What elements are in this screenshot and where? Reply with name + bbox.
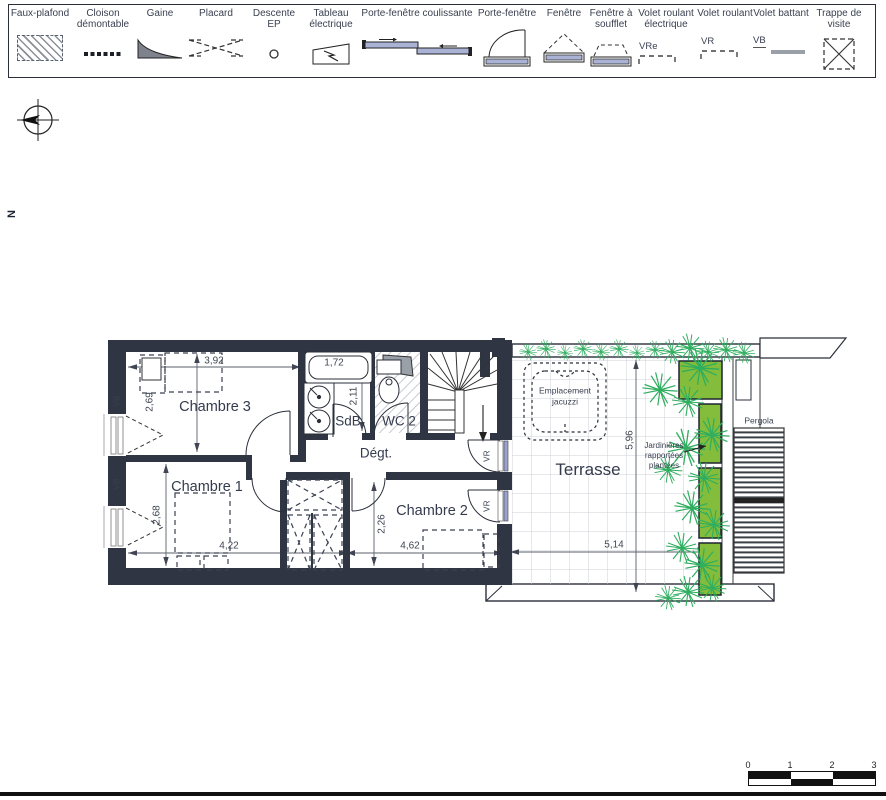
room-label-chambre2: Chambre 2 (396, 503, 468, 519)
room-label-wc2: WC 2 (382, 414, 416, 429)
scale-tick-0: 0 (745, 760, 750, 770)
gaine-plan (142, 358, 161, 380)
dim-ch1-width: 4,22 (219, 541, 238, 552)
dim-sdb-depth: 2,11 (349, 387, 360, 406)
double-sink (304, 383, 334, 434)
scale-tick-1: 1 (787, 760, 792, 770)
dim-bath: 1,72 (324, 358, 343, 369)
scale-tick-3: 3 (871, 760, 876, 770)
dim-terrasse-depth: 5,96 (625, 430, 636, 449)
room-label-terrasse: Terrasse (555, 460, 620, 480)
floor-plan-sheet: Faux-plafond Cloison démontable Gaine Pl… (0, 0, 886, 800)
room-label-chambre3: Chambre 3 (179, 399, 251, 415)
pergola (734, 428, 784, 573)
annotation-jardinieres: Jardinières rapportées plantées (636, 441, 692, 471)
scale-bar-segments (748, 771, 876, 786)
shutter-tag-vb-2: VB (113, 478, 122, 489)
floor-plan-drawing (0, 0, 886, 800)
room-label-sdb: SdB (335, 414, 361, 429)
room-label-chambre1: Chambre 1 (171, 479, 243, 495)
scale-bar: 0 1 2 3 (748, 760, 880, 788)
sheet-footer-rule (0, 792, 886, 796)
shutter-tag-vr-1: VR (483, 450, 492, 462)
dim-terrasse-width: 5,14 (604, 540, 623, 551)
terrace-slab-edge (486, 584, 774, 601)
annotation-jacuzzi: Emplacement jacuzzi (531, 385, 599, 406)
room-label-degagement: Dégt. (360, 446, 392, 461)
shutter-tag-vb-1: VB (113, 395, 122, 406)
dim-ch2-width: 4,62 (400, 541, 419, 552)
dim-ch2-depth: 2,26 (377, 514, 388, 533)
dim-ch3-depth: 2,69 (145, 392, 156, 411)
shutter-tag-vr-2: VR (483, 500, 492, 512)
scale-tick-2: 2 (829, 760, 834, 770)
dim-ch3-width: 3,92 (204, 356, 223, 367)
annotation-pergola: Pergola (744, 416, 773, 427)
dim-ch1-depth: 2,68 (152, 505, 163, 524)
